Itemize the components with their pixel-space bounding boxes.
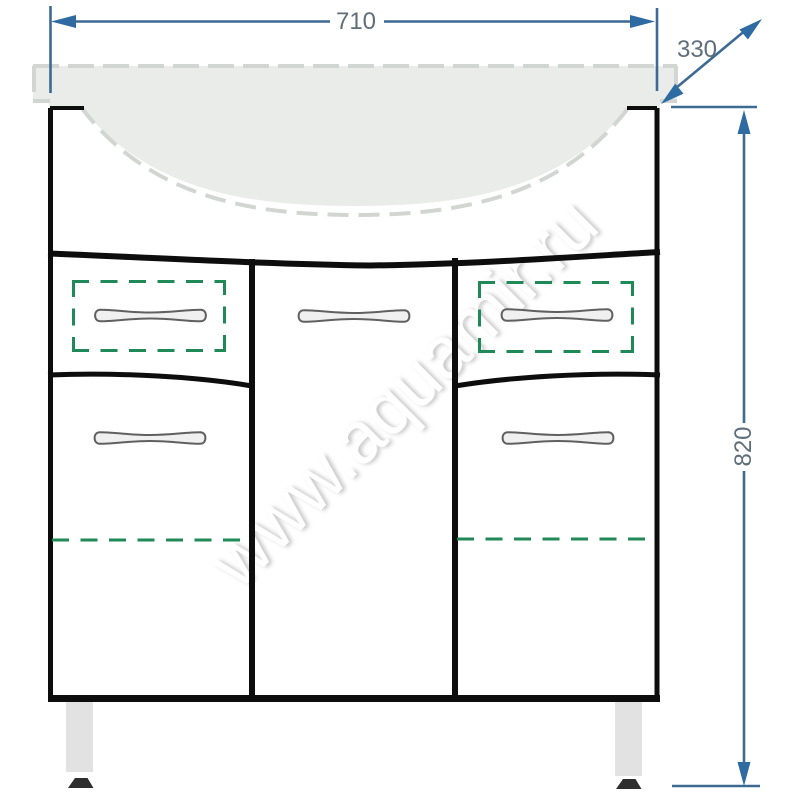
svg-text:330: 330 xyxy=(677,36,717,63)
svg-text:820: 820 xyxy=(730,426,757,466)
svg-text:710: 710 xyxy=(336,8,376,35)
